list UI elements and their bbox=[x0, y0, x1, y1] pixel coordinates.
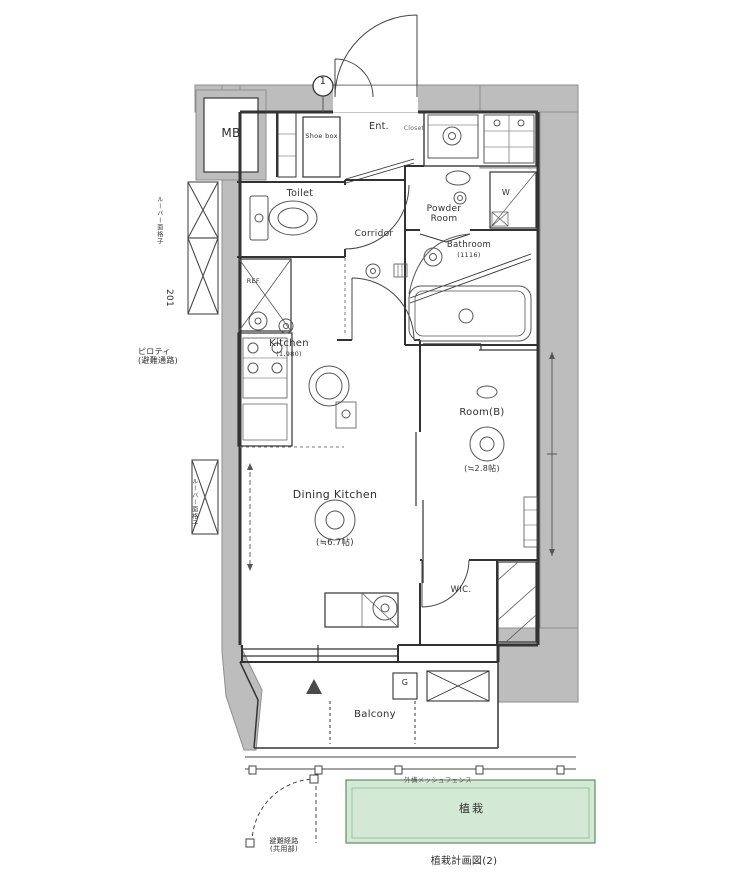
room-label-dining-kitchen: Dining Kitchen bbox=[280, 489, 390, 501]
balcony-area bbox=[240, 662, 498, 748]
plan-caption: 植栽計画図(2) bbox=[400, 856, 528, 867]
room-label-entrance: Ent. bbox=[358, 122, 400, 133]
room-label-mb: MB bbox=[204, 127, 258, 140]
room-label-balcony: Balcony bbox=[330, 709, 420, 720]
planting-label: 植栽 bbox=[448, 803, 496, 815]
piloti-note: ピロティ (避難通路) bbox=[138, 348, 200, 366]
fence-note: 外構メッシュフェンス bbox=[372, 777, 504, 784]
room-label-room-b: Room(B) bbox=[443, 407, 521, 418]
floorplan-drawing bbox=[0, 0, 740, 887]
grille-note-top: ルーバー面格子 bbox=[155, 183, 162, 257]
unit-number: 201 bbox=[164, 285, 174, 311]
grille-note-bottom: ルーバー面格子 bbox=[190, 462, 197, 542]
entrance-note: Closet bbox=[396, 126, 432, 133]
label-shoe-box: Shoe box bbox=[302, 133, 341, 140]
refrigerator-mark: REF. bbox=[240, 278, 268, 285]
unit-marker-number: 1 bbox=[313, 76, 333, 87]
room-label-corridor: Corridor bbox=[346, 229, 402, 239]
railing bbox=[245, 757, 576, 774]
room-label-bathroom: Bathroom bbox=[440, 241, 498, 251]
kitchen-size: (1,980) bbox=[256, 351, 322, 358]
room-label-wic: WIC. bbox=[438, 586, 484, 596]
room-label-powder-room: Powder Room bbox=[415, 204, 473, 224]
washing-machine-mark: W bbox=[496, 189, 516, 198]
floor-plan-page: MB 1 Shoe box Ent. Closet Toilet Corrido… bbox=[0, 0, 740, 887]
room-label-toilet: Toilet bbox=[272, 189, 328, 200]
room-label-kitchen: Kitchen bbox=[256, 338, 322, 349]
bathroom-size: (1116) bbox=[440, 252, 498, 259]
room-b-size: (≒2.8帖) bbox=[446, 465, 518, 474]
water-heater-mark: G bbox=[397, 679, 413, 688]
dining-kitchen-size: (≒6.7帖) bbox=[289, 539, 381, 549]
gate-note: 避難経路 (共用部) bbox=[256, 838, 312, 854]
